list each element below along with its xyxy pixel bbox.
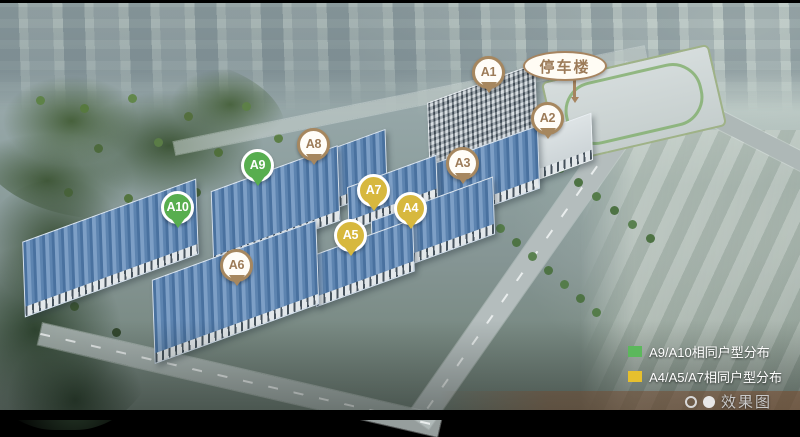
marker-a6[interactable]: A6	[220, 249, 253, 282]
marker-a10[interactable]: A10	[161, 191, 194, 224]
marker-a2[interactable]: A2	[531, 102, 564, 135]
caption-band: 效果图	[440, 391, 800, 412]
marker-a5[interactable]: A5	[334, 219, 367, 252]
carousel-dot-filled[interactable]	[703, 396, 715, 408]
legend-item-label: A4/A5/A7相同户型分布	[649, 367, 782, 386]
legend-item: A4/A5/A7相同户型分布	[628, 367, 782, 386]
marker-label: A3	[455, 157, 470, 170]
parking-label-text: 停车楼	[539, 56, 590, 77]
letterbox-bar-top	[0, 0, 800, 3]
marker-a1[interactable]: A1	[472, 56, 505, 89]
marker-label: A7	[366, 184, 381, 197]
marker-label: A8	[306, 138, 321, 151]
caption-label: 效果图	[721, 391, 772, 412]
marker-label: A4	[403, 202, 418, 215]
marker-a8[interactable]: A8	[297, 128, 330, 161]
legend-color-swatch	[628, 371, 642, 382]
marker-a3[interactable]: A3	[446, 147, 479, 180]
legend-item-label: A9/A10相同户型分布	[649, 342, 770, 361]
legend-color-swatch	[628, 346, 642, 357]
marker-a7[interactable]: A7	[357, 174, 390, 207]
marker-a9[interactable]: A9	[241, 149, 274, 182]
legend: A9/A10相同户型分布 A4/A5/A7相同户型分布	[628, 342, 782, 386]
parking-building-label[interactable]: 停车楼	[523, 51, 607, 81]
marker-a4[interactable]: A4	[394, 192, 427, 225]
carousel-dot-outline[interactable]	[685, 396, 697, 408]
marker-label: A6	[229, 259, 244, 272]
parking-label-pointer	[573, 78, 576, 97]
letterbox-bar-bottom	[0, 410, 800, 420]
tree-dots	[36, 96, 45, 105]
marker-label: A2	[540, 112, 555, 125]
marker-label: A9	[250, 159, 265, 172]
marker-label: A1	[481, 66, 496, 79]
marker-label: A10	[166, 201, 188, 214]
marker-label: A5	[343, 229, 358, 242]
legend-item: A9/A10相同户型分布	[628, 342, 782, 361]
